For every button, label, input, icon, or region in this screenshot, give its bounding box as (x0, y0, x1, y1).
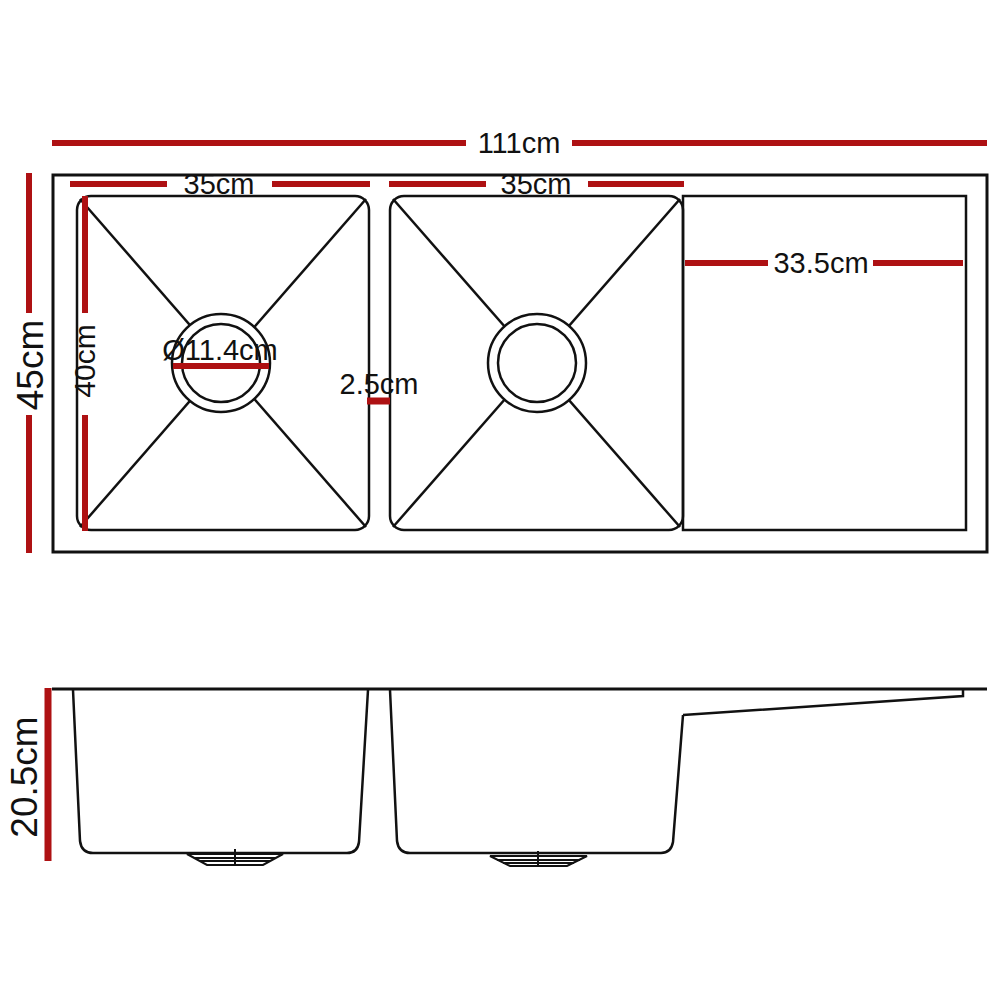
overall-width-label: 111cm (478, 127, 561, 159)
side-view: 20.5cm (4, 688, 988, 867)
right-drain-outer-circle (488, 314, 586, 412)
dim-drainer-width: 33.5cm (685, 247, 963, 279)
dim-overall-depth: 45cm (10, 173, 51, 553)
right-bowl-profile (390, 690, 683, 853)
left-drain-strainer (187, 849, 283, 866)
dim-overall-width: 111cm (52, 127, 987, 159)
overall-depth-label: 45cm (10, 320, 51, 410)
sink-dimension-diagram: 111cm 35cm 35cm (0, 0, 1000, 1000)
dim-bowl-inner-depth: 40cm (68, 196, 101, 531)
top-view: 111cm 35cm 35cm (10, 127, 988, 553)
left-bowl-profile (73, 690, 368, 853)
bowl-depth-label: 20.5cm (4, 716, 45, 837)
drain-diameter-label: Ø11.4cm (162, 334, 278, 366)
dim-divider-gap: 2.5cm (340, 368, 419, 401)
divider-gap-label: 2.5cm (340, 368, 419, 400)
bowl-inner-depth-label: 40cm (68, 324, 101, 397)
drainer-width-label: 33.5cm (773, 247, 868, 279)
drainer-profile (683, 689, 963, 715)
dim-drain-diameter: Ø11.4cm (162, 334, 278, 366)
dim-bowl-depth: 20.5cm (4, 688, 49, 861)
diagram-canvas: 111cm 35cm 35cm (0, 0, 1000, 1000)
